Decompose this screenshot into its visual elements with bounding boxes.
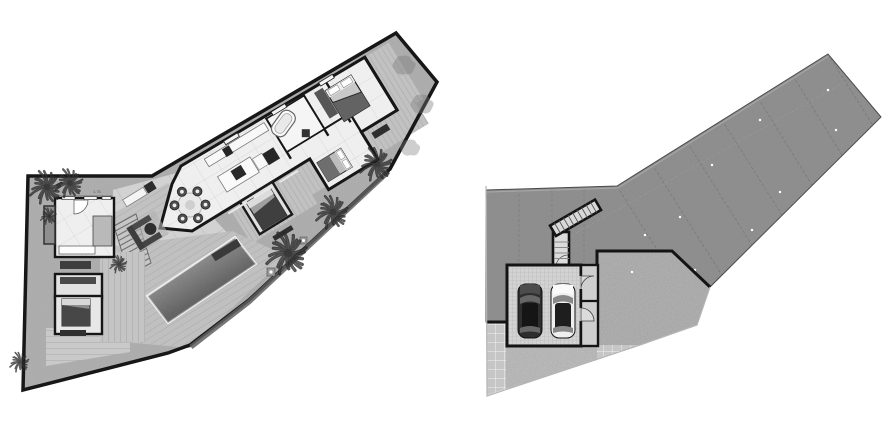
- svg-text:1.75: 1.75: [93, 189, 102, 194]
